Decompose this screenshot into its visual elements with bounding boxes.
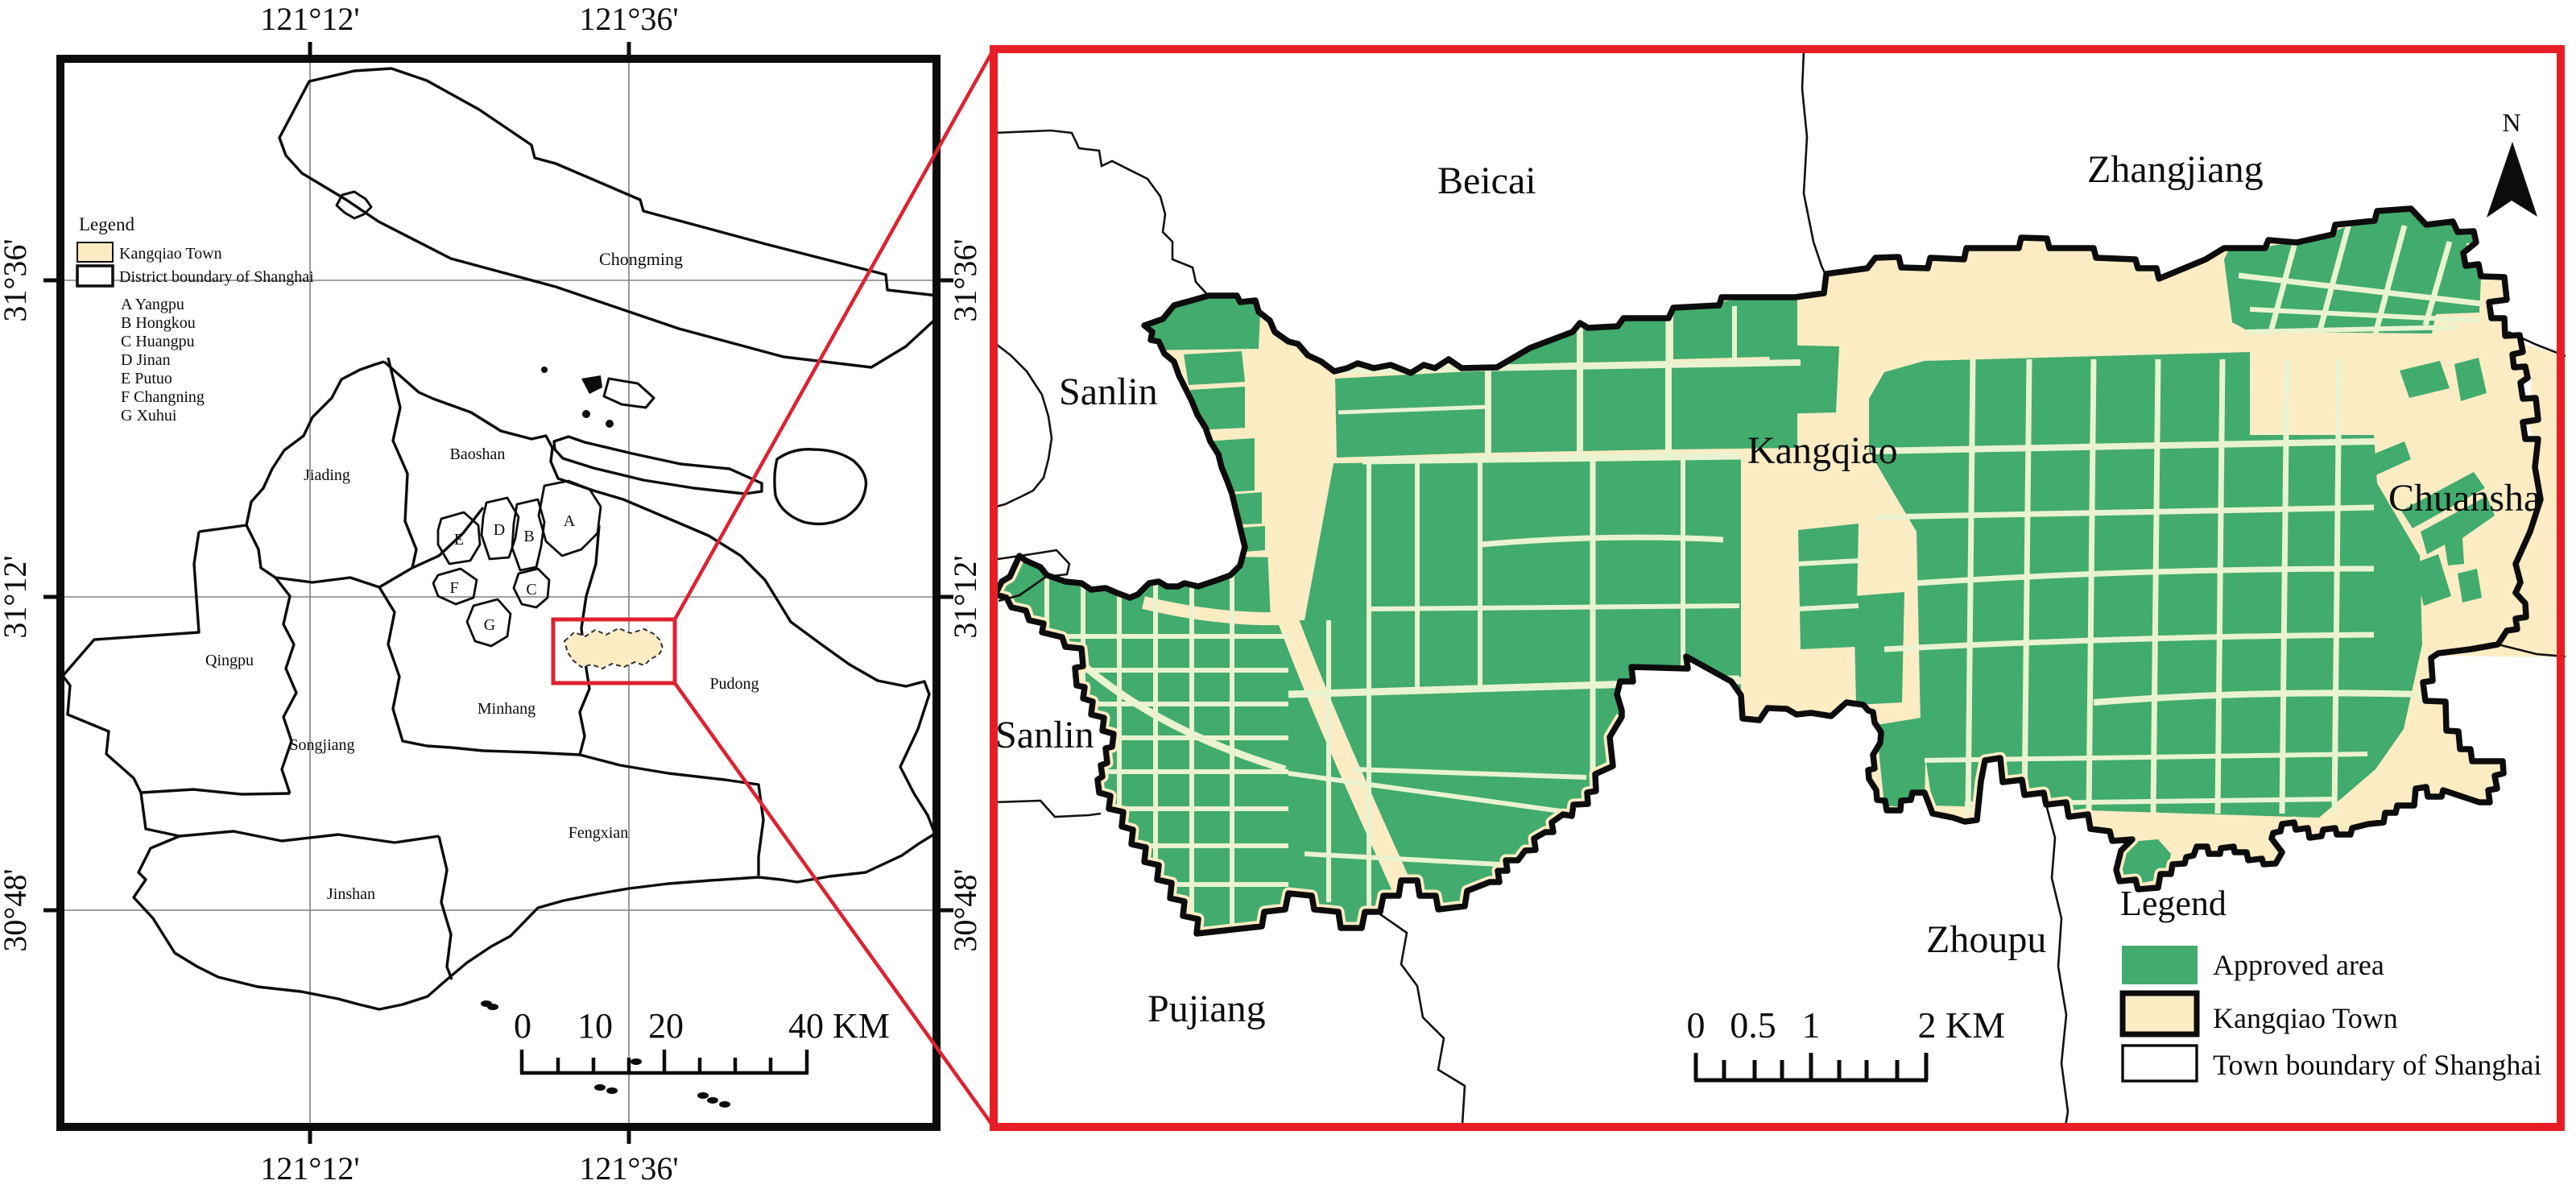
svg-text:Fengxian: Fengxian [569,824,628,842]
svg-text:31°12': 31°12' [947,555,983,638]
svg-text:B: B [523,528,534,545]
svg-text:G: G [484,616,495,634]
svg-text:10: 10 [577,1006,613,1046]
svg-text:E: E [454,531,464,549]
svg-text:A: A [564,512,576,530]
svg-text:Beicai: Beicai [1437,159,1536,202]
svg-text:0.5: 0.5 [1730,1004,1776,1046]
svg-text:F Changning: F Changning [121,388,205,406]
svg-text:Sanlin: Sanlin [995,714,1094,756]
svg-text:Minhang: Minhang [478,700,535,718]
svg-text:Town boundary of Shanghai: Town boundary of Shanghai [2213,1049,2541,1081]
svg-text:Approved area: Approved area [2213,949,2384,981]
svg-text:D: D [494,521,505,539]
svg-text:30°48': 30°48' [947,868,983,951]
svg-text:B Hongkou: B Hongkou [121,314,196,332]
svg-text:121°12': 121°12' [260,1,359,37]
svg-text:31°36': 31°36' [947,238,983,321]
svg-text:KM: KM [833,1006,890,1046]
svg-text:0: 0 [514,1006,531,1046]
svg-text:Chuansha: Chuansha [2388,477,2541,520]
svg-text:Songjiang: Songjiang [289,736,354,754]
svg-text:Chongming: Chongming [599,249,683,269]
svg-text:Sanlin: Sanlin [1059,371,1158,413]
svg-text:121°36': 121°36' [579,1,678,37]
svg-text:30°48': 30°48' [0,868,33,951]
svg-text:31°12': 31°12' [0,555,33,638]
svg-text:C: C [526,581,536,598]
svg-text:Kangqiao Town: Kangqiao Town [2213,1002,2398,1034]
svg-text:F: F [449,579,458,597]
svg-text:121°12': 121°12' [260,1150,359,1187]
svg-text:0: 0 [1687,1004,1706,1046]
svg-text:121°36': 121°36' [579,1150,678,1187]
svg-text:Pudong: Pudong [709,675,759,693]
svg-text:C Huangpu: C Huangpu [121,333,195,350]
svg-text:N: N [2502,108,2520,137]
svg-text:31°36': 31°36' [0,238,33,321]
svg-text:Legend: Legend [2120,884,2227,923]
svg-text:Jiading: Jiading [304,466,350,484]
svg-text:Zhoupu: Zhoupu [1926,918,2046,961]
svg-text:40: 40 [788,1006,824,1046]
svg-text:Kangqiao Town: Kangqiao Town [119,245,222,263]
svg-text:Legend: Legend [79,214,134,234]
svg-text:Zhangjiang: Zhangjiang [2087,148,2264,191]
svg-text:2: 2 [1918,1004,1937,1046]
svg-text:20: 20 [648,1006,684,1046]
svg-text:D Jinan: D Jinan [121,351,171,369]
svg-text:Pujiang: Pujiang [1147,988,1266,1030]
svg-text:1: 1 [1802,1004,1821,1046]
svg-text:A Yangpu: A Yangpu [121,296,184,313]
svg-text:Baoshan: Baoshan [450,445,506,463]
svg-text:KM: KM [1945,1004,2005,1046]
svg-text:Qingpu: Qingpu [205,652,254,669]
svg-text:Jinshan: Jinshan [327,885,375,903]
svg-text:District boundary of Shanghai: District boundary of Shanghai [119,268,314,286]
svg-text:E Putuo: E Putuo [121,370,172,387]
svg-text:Kangqiao: Kangqiao [1747,429,1898,472]
svg-text:G Xuhui: G Xuhui [121,407,177,425]
